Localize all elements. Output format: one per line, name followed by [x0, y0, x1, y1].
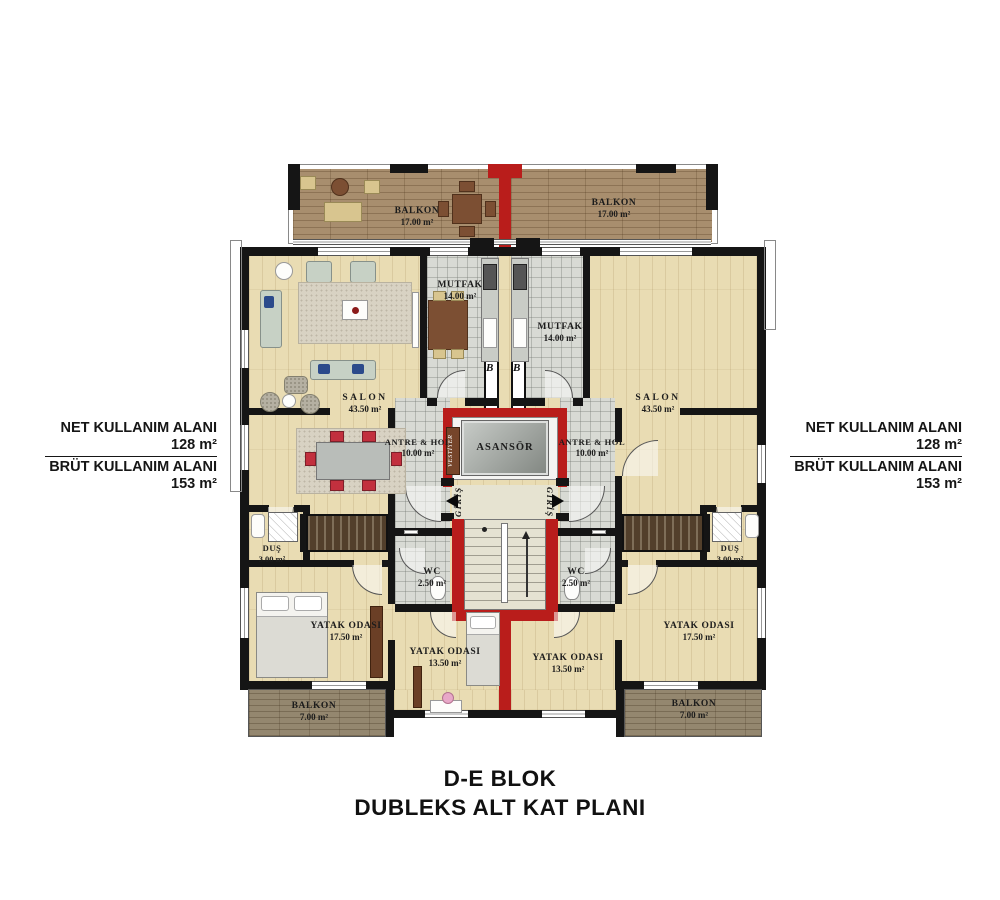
divider-line [45, 456, 217, 457]
entry-arrow-right-icon [552, 494, 564, 508]
balcony-glass-door [293, 239, 711, 245]
gross-area-label: BRÜT KULLANIM ALANI [45, 459, 217, 476]
wall-segment [516, 238, 540, 247]
wall-segment [706, 164, 718, 210]
room-label-dus-left: DUŞ3.00 m² [246, 543, 298, 565]
duct [404, 530, 418, 534]
window [318, 247, 390, 256]
wall-segment [288, 164, 300, 210]
window [620, 247, 692, 256]
armchair [306, 261, 332, 283]
balcony-lounge [324, 202, 362, 222]
room-label-mutfak-right: MUTFAK14.00 m² [515, 321, 605, 345]
room-label-yatak-buyuk-left: YATAK ODASI17.50 m² [300, 620, 392, 644]
net-area-label: NET KULLANIM ALANI [790, 420, 962, 437]
window [757, 588, 766, 638]
wall-segment [558, 528, 615, 536]
red-wall-stairs-right [546, 519, 558, 610]
gross-area-value: 153 m² [790, 476, 962, 493]
pillow [294, 596, 322, 611]
room-label-balkon-bottom-right: BALKON7.00 m² [649, 698, 739, 722]
pillow [261, 596, 289, 611]
kitchen-table [428, 300, 468, 350]
shaft-b-right-label: B [513, 362, 520, 374]
washbasin [745, 514, 759, 538]
dining-chair [362, 431, 376, 442]
room-label-asansor: ASANSÖR [452, 441, 558, 455]
wall-segment [420, 256, 427, 398]
armchair [260, 392, 280, 412]
clock-table [282, 394, 296, 408]
room-label-balkon-top-left: BALKON17.00 m² [372, 205, 462, 229]
bay-window-frame [230, 240, 242, 492]
wall-segment [385, 681, 394, 737]
room-label-salon-right: SALON43.50 m² [608, 392, 708, 416]
sink-left [483, 318, 497, 348]
stair-rail [501, 523, 508, 603]
room-label-yatak-kucuk-left: YATAK ODASI13.50 m² [399, 646, 491, 670]
balcony-chair [300, 176, 316, 190]
room-label-balkon-bottom-left: BALKON7.00 m² [269, 700, 359, 724]
wall-segment [249, 505, 269, 512]
kitchen-chair [451, 349, 464, 359]
duplex-stairs-right [622, 514, 704, 552]
gross-area-label: BRÜT KULLANIM ALANI [790, 459, 962, 476]
kitchen-chair [433, 349, 446, 359]
desk-chair [442, 692, 454, 704]
duct [592, 530, 606, 534]
stair-start-dot [482, 527, 487, 532]
wall-segment [470, 238, 494, 247]
room-label-balkon-top-right: BALKON17.00 m² [569, 197, 659, 221]
red-center-wall-lower [499, 621, 511, 717]
cushion [352, 364, 364, 374]
shaft-b-left-label: B [486, 362, 493, 374]
duplex-stairs-left [306, 514, 388, 552]
dining-chair [330, 431, 344, 442]
washbasin [251, 514, 265, 538]
dining-chair [330, 480, 344, 491]
balcony-chair [364, 180, 380, 194]
floor-plan: B B ASANSÖR VESTİYER GİRİŞ GİRİŞ [0, 0, 1000, 900]
wall-segment [558, 604, 615, 612]
wall-segment [395, 604, 452, 612]
pillow [470, 616, 496, 629]
wall-segment [427, 398, 437, 406]
window [644, 681, 698, 690]
stove-right [513, 264, 527, 290]
stair-up-arrow-icon [522, 531, 530, 539]
dining-chair [362, 480, 376, 491]
balcony-round-table [331, 178, 349, 196]
wall-segment [240, 247, 318, 256]
entry-arrow-left-icon [446, 494, 458, 508]
window [240, 588, 249, 638]
wall-segment [616, 681, 625, 737]
stair-direction-line [526, 539, 528, 597]
wall-segment [468, 710, 542, 718]
wall-segment [465, 398, 499, 406]
wall-segment [573, 398, 583, 406]
cushion [318, 364, 330, 374]
gross-area-value: 153 m² [45, 476, 217, 493]
balcony-chair [459, 181, 475, 192]
wall-segment [636, 164, 676, 173]
wall-segment [300, 514, 306, 552]
wall-segment [441, 478, 454, 486]
room-label-antre-right: ANTRE & HOL10.00 m² [552, 437, 632, 460]
window [430, 247, 468, 256]
red-wall-core-top [443, 408, 567, 417]
wall-segment [698, 681, 766, 690]
ceiling-fan [275, 262, 293, 280]
bay-window-frame [764, 240, 776, 330]
shower-tray [712, 512, 742, 542]
net-area-value: 128 m² [45, 437, 217, 454]
wall-segment [622, 681, 644, 690]
wardrobe [413, 666, 422, 708]
area-annotation-left: NET KULLANIM ALANI 128 m² BRÜT KULLANIM … [45, 420, 217, 493]
net-area-label: NET KULLANIM ALANI [45, 420, 217, 437]
wall-segment [390, 247, 430, 256]
wall-segment [388, 562, 395, 604]
room-label-wc-left: WC2.50 m² [404, 566, 460, 590]
divider-line [790, 456, 962, 457]
wall-segment [394, 710, 425, 718]
wall-segment [556, 478, 569, 486]
armchair [350, 261, 376, 283]
window [757, 445, 766, 483]
wall-segment [580, 247, 620, 256]
room-label-antre-left: ANTRE & HOL10.00 m² [378, 437, 458, 460]
wall-segment [615, 562, 622, 604]
armchair [284, 376, 308, 394]
wall-segment [390, 164, 428, 173]
wall-segment [382, 560, 395, 567]
room-label-dus-right: DUŞ3.00 m² [704, 543, 756, 565]
room-label-yatak-buyuk-right: YATAK ODASI17.50 m² [653, 620, 745, 644]
window [542, 710, 585, 718]
plan-title: D-E BLOK DUBLEKS ALT KAT PLANI [300, 764, 700, 823]
wall-segment [692, 247, 766, 256]
room-label-salon-left: SALON43.50 m² [315, 392, 415, 416]
table-decor [352, 307, 359, 314]
plan-title-line1: D-E BLOK [300, 764, 700, 793]
shower-tray [268, 512, 298, 542]
net-area-value: 128 m² [790, 437, 962, 454]
wall-segment [615, 476, 622, 562]
dining-chair [305, 452, 316, 466]
room-label-mutfak-left: MUTFAK14.00 m² [415, 279, 505, 303]
room-label-yatak-kucuk-right: YATAK ODASI13.50 m² [522, 652, 614, 676]
window [542, 247, 580, 256]
balcony-chair [485, 201, 496, 217]
cushion [264, 296, 274, 308]
window [312, 681, 366, 690]
plan-title-line2: DUBLEKS ALT KAT PLANI [300, 793, 700, 822]
room-label-wc-right: WC2.50 m² [548, 566, 604, 590]
wall-segment [585, 710, 616, 718]
wall-segment [511, 398, 545, 406]
area-annotation-right: NET KULLANIM ALANI 128 m² BRÜT KULLANIM … [790, 420, 962, 493]
entry-landing [452, 485, 558, 519]
wall-segment [240, 681, 312, 690]
wall-segment [615, 560, 628, 567]
wall-segment [468, 247, 542, 256]
red-wall-stairs-left [452, 519, 464, 610]
